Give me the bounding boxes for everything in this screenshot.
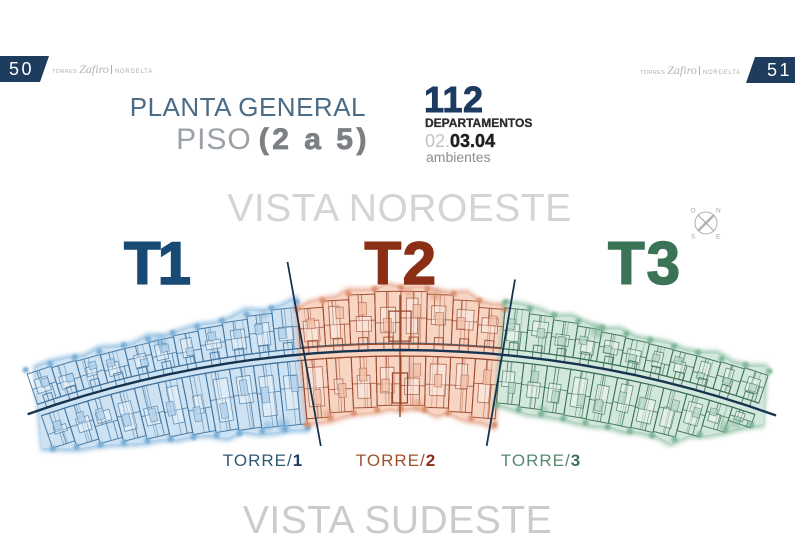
svg-text:N: N bbox=[716, 208, 721, 215]
svg-text:E: E bbox=[716, 234, 721, 241]
svg-text:O: O bbox=[691, 208, 696, 215]
